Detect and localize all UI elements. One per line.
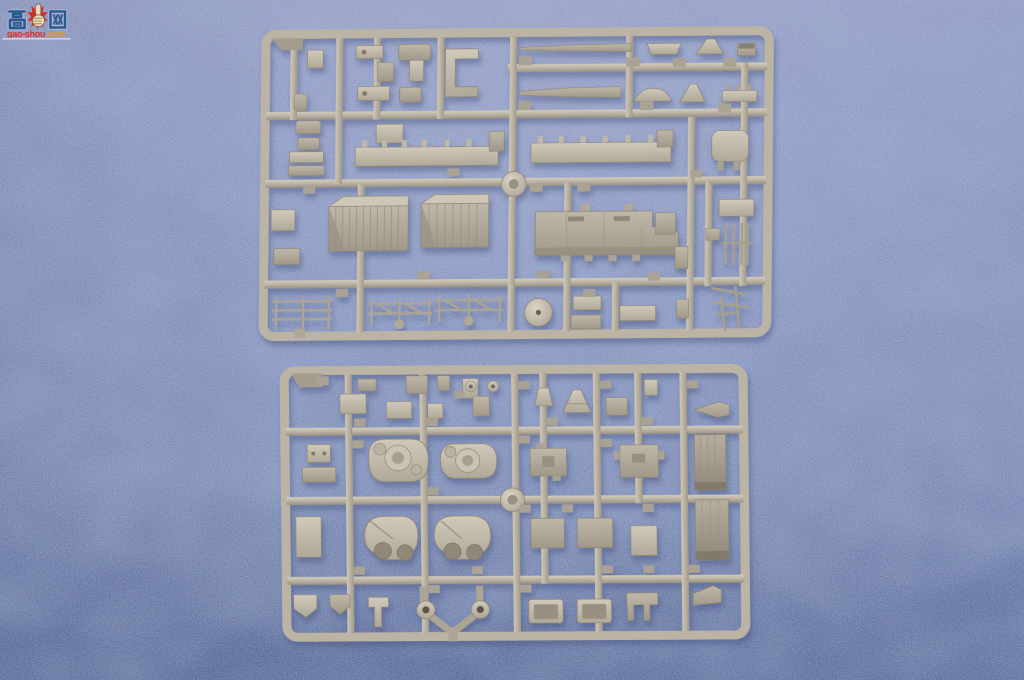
svg-text:gao-shou.com: gao-shou.com: [7, 29, 65, 39]
